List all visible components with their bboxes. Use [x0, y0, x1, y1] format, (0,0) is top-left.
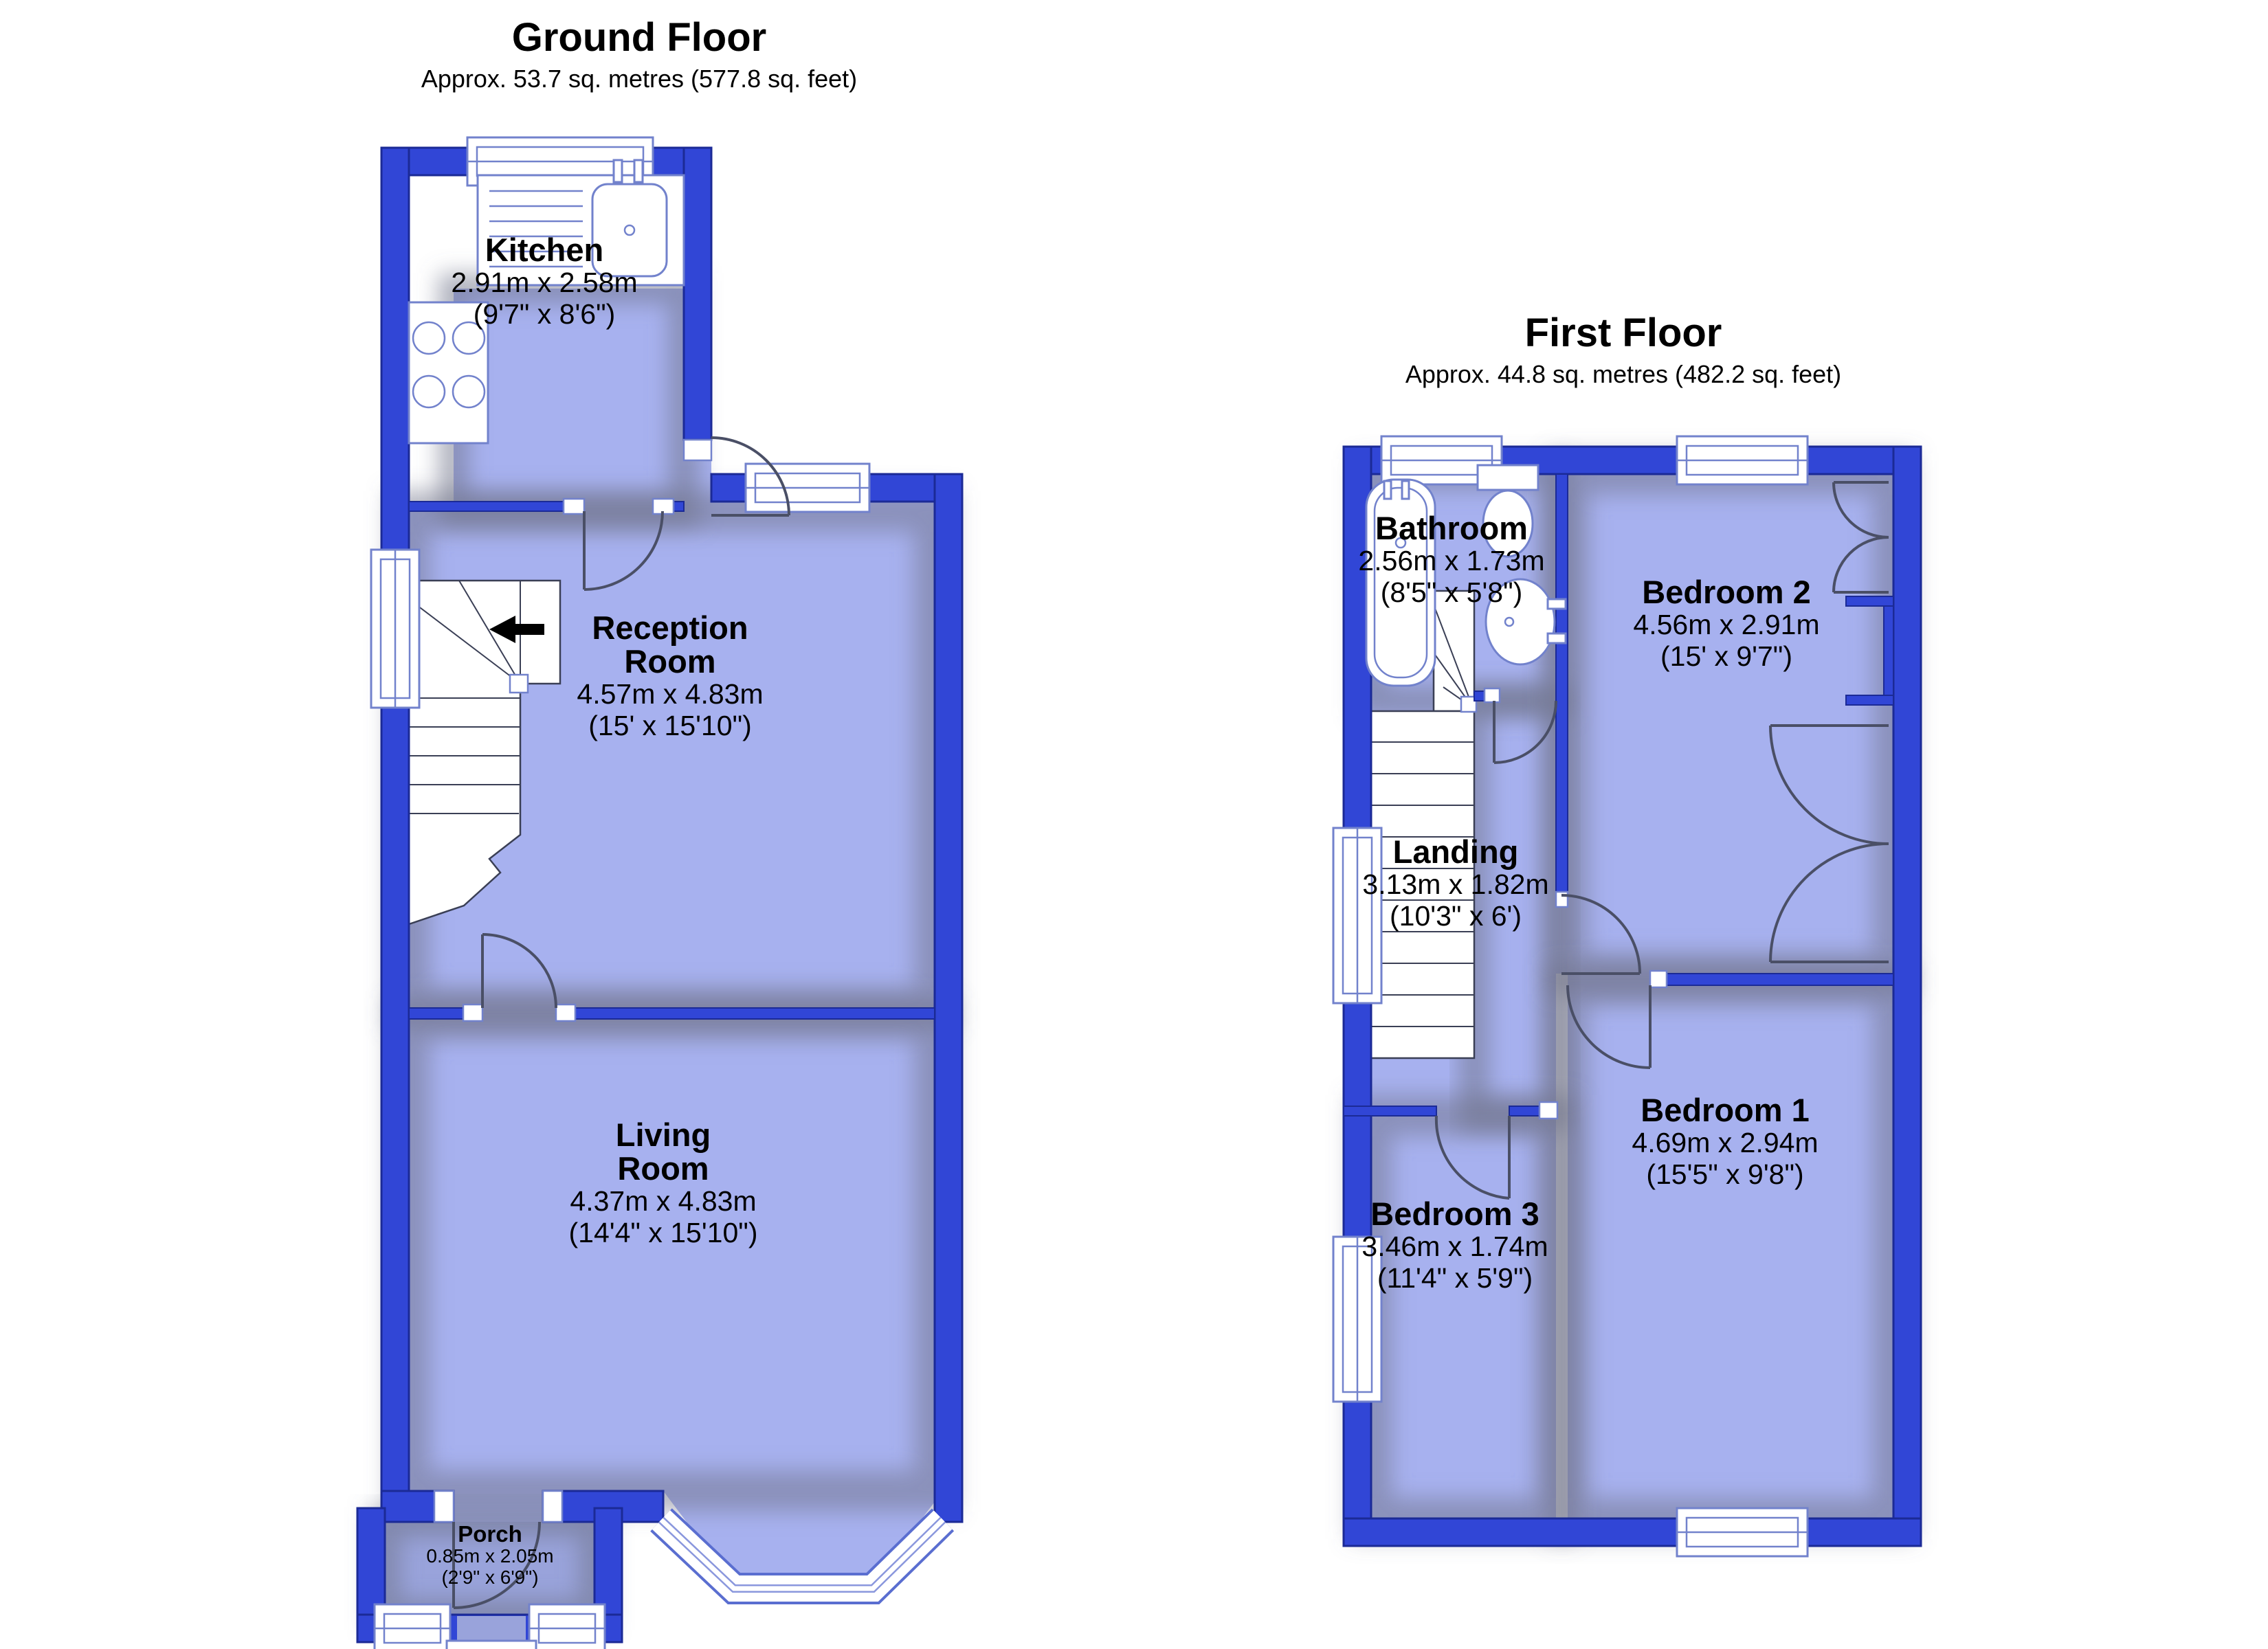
room-label-kitchen: Kitchen 2.91m x 2.58m (9'7" x 8'6") — [400, 234, 689, 330]
first-floor-title: First Floor Approx. 44.8 sq. metres (482… — [1405, 313, 1841, 389]
porch-window-right — [529, 1604, 605, 1649]
room-label-porch: Porch 0.85m x 2.05m (2'9" x 6'9") — [380, 1523, 600, 1589]
room-label-landing: Landing 3.13m x 1.82m (10'3" x 6') — [1304, 835, 1607, 932]
first-floor-area-text: Approx. 44.8 sq. metres (482.2 sq. feet) — [1405, 360, 1841, 389]
room-label-bedroom3: Bedroom 3 3.46m x 1.74m (11'4" x 5'9") — [1304, 1198, 1606, 1294]
bedroom1-window — [1677, 1508, 1808, 1556]
floorplan-page: { "floors": [ { "id": "ground", "title":… — [0, 0, 2268, 1649]
sink-tap — [614, 160, 622, 182]
ground-floor-area-text: Approx. 53.7 sq. metres (577.8 sq. feet) — [421, 65, 857, 93]
stair-newel — [510, 675, 528, 693]
first-floor-title-text: First Floor — [1405, 313, 1841, 355]
room-label-bathroom: Bathroom 2.56m x 1.73m (8'5" x 5'8") — [1300, 512, 1603, 609]
room-label-living: Living Room 4.37m x 4.83m (14'4" x 15'10… — [567, 1119, 759, 1249]
ground-floor-plan — [357, 137, 962, 1649]
ground-floor-title: Ground Floor Approx. 53.7 sq. metres (57… — [421, 17, 857, 93]
ground-floor-title-text: Ground Floor — [421, 17, 857, 59]
room-label-reception: Reception Room 4.57m x 4.83m (15' x 15'1… — [553, 612, 787, 742]
porch-window-left — [375, 1604, 450, 1649]
sink-tap — [634, 160, 643, 182]
reception-side-window — [371, 550, 419, 708]
floorplan-drawing — [0, 0, 2268, 1649]
reception-top-window — [746, 464, 869, 512]
bedroom2-floor — [1568, 474, 1893, 974]
porch-entrance — [447, 1616, 536, 1649]
room-label-bedroom2: Bedroom 2 4.56m x 2.91m (15' x 9'7") — [1561, 576, 1891, 673]
living-floor — [409, 1019, 935, 1491]
room-label-bedroom1: Bedroom 1 4.69m x 2.94m (15'5" x 9'8") — [1560, 1094, 1890, 1191]
bedroom1-floor — [1568, 985, 1893, 1518]
bedroom3-floor — [1371, 1116, 1556, 1518]
bedroom2-window — [1677, 436, 1808, 484]
